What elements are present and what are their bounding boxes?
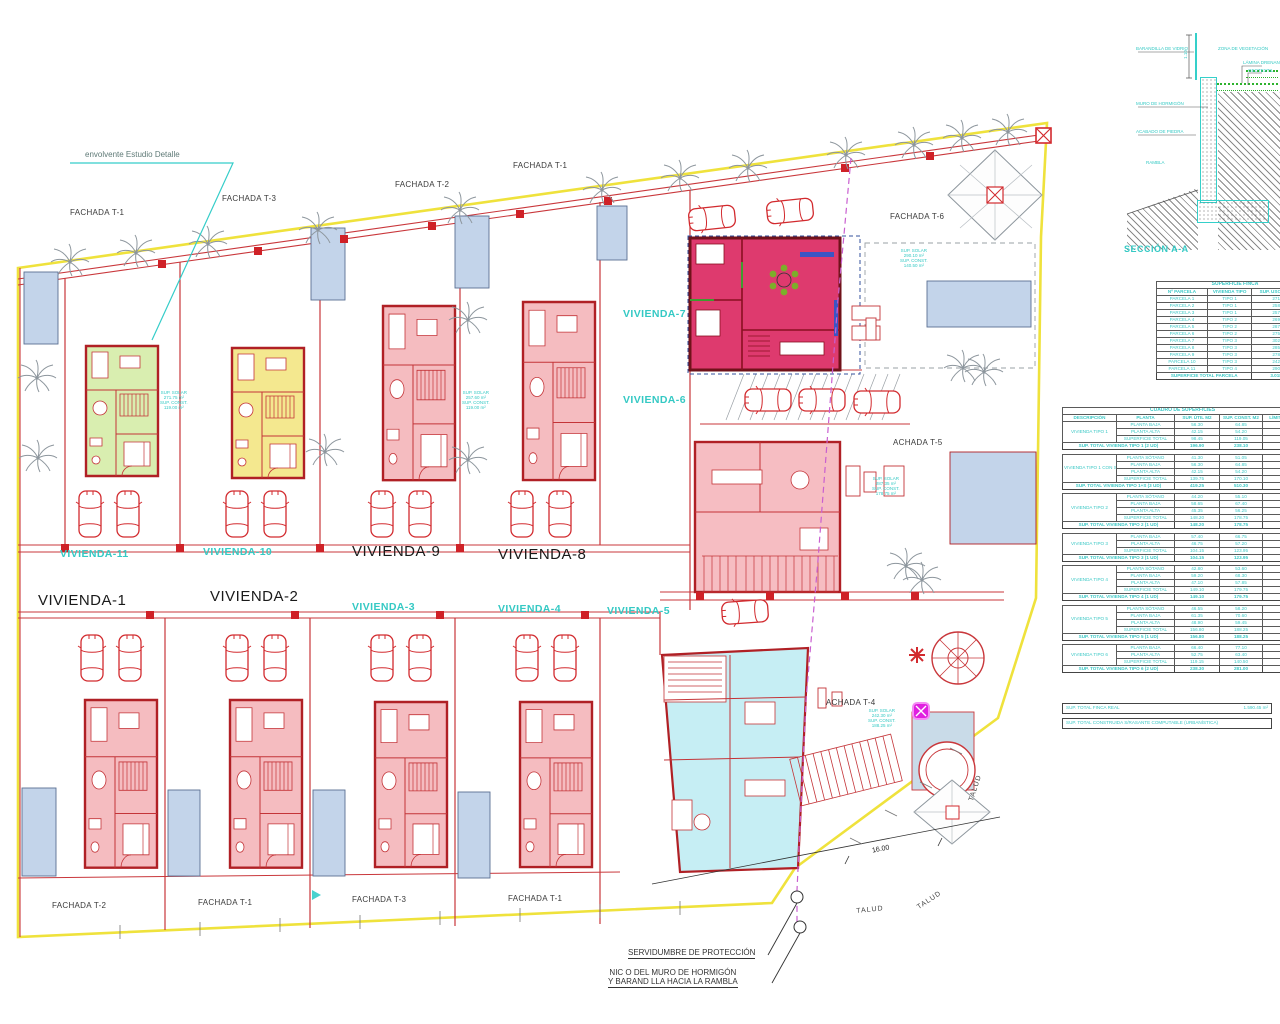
section-label-vegetacion: ZONA DE VEGETACIÓN [1218, 46, 1268, 51]
label-fachada-t3-bottom: FACHADA T-3 [352, 895, 406, 904]
table-cell: PLANTA SÓTANO [1117, 454, 1175, 461]
table-cell: PLANTA SÓTANO [1117, 605, 1175, 612]
table-cell: PLANTA ALTA [1117, 652, 1175, 659]
table-cell: SUP. TOTAL VIVIENDA TIPO 3 (1 UD) [1063, 554, 1175, 561]
table-cell: TIPO 3 [1207, 352, 1252, 359]
table-cell: SUP. ÚTIL M2 [1175, 415, 1220, 422]
table-cell: 61.35 [1175, 612, 1220, 619]
table-row: PARCELA 7TIPO 3302.25 m² [1157, 338, 1280, 345]
table-cell: 258.20 m² [1252, 303, 1280, 310]
table-cell: PLANTA BAJA [1117, 422, 1175, 429]
table-cell [1263, 422, 1280, 429]
label-fachada-t1b-bottom: FACHADA T-1 [508, 894, 562, 903]
table-cell: PARCELA 1 [1157, 296, 1208, 303]
table-cell [1263, 547, 1280, 554]
table-cell [1263, 515, 1280, 522]
label-vivienda-4: VIVIENDA-4 [498, 603, 561, 615]
table-cell: VIVIENDA TIPO 2 [1063, 494, 1117, 522]
table-cell [1263, 566, 1280, 573]
table-cell [1263, 522, 1280, 529]
table-cell: 278.45 m² [1252, 352, 1280, 359]
table-cell: SUP. TOTAL VIVIENDA TIPO 6 (2 UD) [1063, 666, 1175, 673]
table-cell: 77.10 [1220, 645, 1263, 652]
table-cell: VIVIENDA TIPO 5 [1063, 605, 1117, 633]
label-fachada-t3-top: FACHADA T-3 [222, 194, 276, 203]
table-cell: 57.40 [1175, 533, 1220, 540]
table-cell [1263, 461, 1280, 468]
site-plan-canvas: envolvente Estudio Detalle FACHADA T-1 F… [0, 0, 1280, 1024]
table-cell: 41.30 [1175, 454, 1220, 461]
table-cell: 257.60 m² [1252, 310, 1280, 317]
table-cell: VIVIENDA TIPO [1207, 289, 1252, 296]
table-row: VIVIENDA TIPO 1PLANTA BAJA56.3064.85 [1063, 422, 1280, 429]
house-vivienda-3 [375, 702, 447, 867]
table-cell [1263, 612, 1280, 619]
table-cell [1263, 554, 1280, 561]
label-vivienda-1: VIVIENDA-1 [38, 592, 126, 609]
table-cell: 419.25 [1175, 482, 1220, 489]
table-cell: PARCELA 2 [1157, 303, 1208, 310]
annotation-sup: SUP. SOLAR242.30 m² SUP. CONST.188.25 m² [868, 708, 896, 728]
annotation-sup: SUP. SOLAR257.60 m² SUP. CONST.119.00 m² [462, 390, 490, 410]
table-cell: 119.05 [1220, 436, 1263, 443]
table-cell: TIPO 2 [1207, 317, 1252, 324]
table-cell: PARCELA 4 [1157, 317, 1208, 324]
pergola-hatch [790, 734, 903, 806]
table-cell: SUPERFICIE TOTAL PARCELA [1157, 373, 1252, 380]
label-vivienda-5: VIVIENDA-5 [607, 605, 670, 617]
table-row: CUADRO DE SUPERFICIES [1063, 408, 1280, 415]
cuadro-superficies-table: CUADRO DE SUPERFICIESDESCRIPCIÓNPLANTASU… [1062, 407, 1280, 673]
table-cell: PLANTA BAJA [1117, 645, 1175, 652]
house-vivienda-9 [383, 306, 455, 480]
section-label-lamina: LÁMINA DRENANTE [1243, 60, 1280, 65]
table-cell: PLANTA BAJA [1117, 461, 1175, 468]
table-cell: PARCELA 7 [1157, 338, 1208, 345]
table-cell: 42.80 [1175, 566, 1220, 573]
table-cell: DESCRIPCIÓN [1063, 415, 1117, 422]
table-cell: PLANTA ALTA [1117, 508, 1175, 515]
table-cell: 56.30 [1175, 422, 1220, 429]
table-cell: 139.75 [1175, 475, 1220, 482]
table-cell: PLANTA BAJA [1117, 501, 1175, 508]
section-label-geotextil: GEOTEXTIL [1248, 68, 1273, 73]
table-cell: VIVIENDA TIPO 1 [1063, 422, 1117, 443]
table-cell: TIPO 1 [1207, 296, 1252, 303]
table-cell [1263, 580, 1280, 587]
table-cell: 48.90 [1175, 619, 1220, 626]
table-cell: 510.30 [1220, 482, 1263, 489]
envolvente-note: envolvente Estudio Detalle [85, 150, 180, 159]
table-cell: 275.90 m² [1252, 331, 1280, 338]
table-cell: 104.15 [1175, 554, 1220, 561]
boundary-x-box-icon [1036, 128, 1051, 143]
superficie-finca-table: SUPERFICIE FINCANº PARCELAVIVIENDA TIPOS… [1156, 281, 1280, 380]
table-cell: 149.10 [1175, 594, 1220, 601]
table-cell: 63.40 [1220, 652, 1263, 659]
house-vivienda-7-magenta [690, 238, 840, 370]
table-row: PARCELA 9TIPO 3278.45 m² [1157, 352, 1280, 359]
house-vivienda-5-cyan [662, 648, 808, 872]
table-row: SUP. TOTAL VIVIENDA TIPO 6 (2 UD)238.302… [1063, 666, 1280, 673]
table-cell: PARCELA 9 [1157, 352, 1208, 359]
table-cell [1263, 540, 1280, 547]
label-fachada-t1-top: FACHADA T-1 [70, 208, 124, 217]
table-row: PARCELA 3TIPO 1257.60 m² [1157, 310, 1280, 317]
table-cell: SUP. CONST. M2 [1220, 415, 1263, 422]
table-cell: VIVIENDA TIPO 4 [1063, 566, 1117, 594]
table-cell: Nº PARCELA [1157, 289, 1208, 296]
table-row: PARCELA 4TIPO 2269.15 m² [1157, 317, 1280, 324]
table-cell: 188.25 [1220, 626, 1263, 633]
table-cell: PLANTA [1117, 415, 1175, 422]
table-row: VIVIENDA TIPO 3PLANTA BAJA57.4066.75 [1063, 533, 1280, 540]
table-row: PARCELA 2TIPO 1258.20 m² [1157, 303, 1280, 310]
note-leaders [768, 891, 806, 983]
label-vivienda-9: VIVIENDA-9 [352, 543, 440, 560]
table-cell: 67.40 [1220, 501, 1263, 508]
label-fachada-t1a-bottom: FACHADA T-1 [198, 898, 252, 907]
table-row: PARCELA 11TIPO 4290.10 m² [1157, 366, 1280, 373]
table-cell: SUP. TOTAL VIVIENDA TIPO 4 (1 UD) [1063, 594, 1175, 601]
section-label-rambla: RAMBLA [1146, 160, 1165, 165]
house-vivienda-2 [230, 700, 302, 868]
table-cell: 123.95 [1220, 554, 1263, 561]
table-cell: 271.75 m² [1252, 296, 1280, 303]
table-cell: PLANTA BAJA [1117, 533, 1175, 540]
note-muro: NIC O DEL MURO DE HORMIGÓNY BARAND LLA H… [608, 968, 738, 988]
table-cell [1263, 659, 1280, 666]
table-cell: SUP. TOTAL VIVIENDA TIPO 1 (2 UD) [1063, 443, 1175, 450]
table-cell: 46.55 [1175, 605, 1220, 612]
table-cell [1263, 666, 1280, 673]
table-cell: 57.20 [1220, 540, 1263, 547]
table-cell: VIVIENDA TIPO 6 [1063, 645, 1117, 666]
table-cell: 119.15 [1175, 659, 1220, 666]
total-construida-bar: SUP. TOTAL CONSTRUIDA S/RASANTE COMPUTAB… [1062, 718, 1272, 729]
table-row: PARCELA 1TIPO 1271.75 m² [1157, 296, 1280, 303]
table-cell [1263, 475, 1280, 482]
house-vivienda-11 [86, 346, 158, 476]
house-fachada-t5 [695, 442, 840, 592]
table-cell: 44.20 [1175, 494, 1220, 501]
table-cell: 66.40 [1175, 645, 1220, 652]
table-cell: PARCELA 11 [1157, 366, 1208, 373]
table-cell: TIPO 1 [1207, 310, 1252, 317]
table-cell: 52.75 [1175, 652, 1220, 659]
label-vivienda-11: VIVIENDA-11 [60, 548, 129, 560]
table-cell: 123.95 [1220, 547, 1263, 554]
table-cell: PARCELA 8 [1157, 345, 1208, 352]
table-row: SUP. TOTAL VIVIENDA TIPO 3 (1 UD)104.151… [1063, 554, 1280, 561]
house-vivienda-8 [523, 302, 595, 480]
table-cell: SUPERFICIE TOTAL [1117, 547, 1175, 554]
table-cell: 178.75 [1220, 515, 1263, 522]
table-cell: SUP. TOTAL VIVIENDA TIPO 2 (1 UD) [1063, 522, 1175, 529]
table-cell: PLANTA SÓTANO [1117, 566, 1175, 573]
label-fachada-t2-bottom: FACHADA T-2 [52, 901, 106, 910]
table-cell: 238.30 [1175, 666, 1220, 673]
table-cell [1263, 626, 1280, 633]
total-finca-bar: SUP. TOTAL FINCA REAL1.590.45 m² [1062, 703, 1272, 714]
table-cell [1263, 494, 1280, 501]
table-cell [1263, 594, 1280, 601]
table-cell: VIVIENDA TIPO 3 [1063, 533, 1117, 554]
table-cell [1263, 652, 1280, 659]
table-cell: TIPO 4 [1207, 366, 1252, 373]
section-title: SECCIÓN A-A [1124, 244, 1189, 254]
table-cell: 285.40 m² [1252, 345, 1280, 352]
table-cell: 59.45 [1220, 619, 1263, 626]
table-cell: SUPERFICIE TOTAL [1117, 515, 1175, 522]
table-cell: 54.20 [1220, 468, 1263, 475]
table-cell [1263, 482, 1280, 489]
table-cell [1263, 429, 1280, 436]
table-cell: 281.00 [1220, 666, 1263, 673]
table-cell: SUPERFICIE TOTAL [1117, 436, 1175, 443]
table-cell: 179.75 [1220, 587, 1263, 594]
table-row: SUPERFICIE FINCA [1157, 282, 1280, 289]
table-cell: PLANTA BAJA [1117, 573, 1175, 580]
note-servidumbre: SERVIDUMBRE DE PROTECCIÓN [628, 948, 755, 959]
table-row: SUP. TOTAL VIVIENDA TIPO 2 (1 UD)148.201… [1063, 522, 1280, 529]
label-vivienda-2: VIVIENDA-2 [210, 588, 298, 605]
table-cell: 56.25 [1220, 508, 1263, 515]
table-cell: 104.15 [1175, 547, 1220, 554]
table-row: VIVIENDA TIPO 5PLANTA SÓTANO46.5558.20 [1063, 605, 1280, 612]
section-label-acabado: ACABADO DE PIEDRA [1136, 129, 1184, 134]
table-cell [1263, 587, 1280, 594]
table-cell: PLANTA ALTA [1117, 540, 1175, 547]
label-fachada-t4: ACHADA T-4 [826, 698, 876, 707]
table-cell: SUPERFICIE TOTAL [1117, 659, 1175, 666]
table-cell: 98.45 [1175, 436, 1220, 443]
house-vivienda-4 [520, 702, 592, 867]
table-cell [1263, 633, 1280, 640]
table-cell: 55.10 [1220, 494, 1263, 501]
section-dim: 1.10 [1183, 50, 1188, 59]
table-cell: 66.75 [1220, 533, 1263, 540]
table-cell: 59.20 [1175, 573, 1220, 580]
table-row: SUP. TOTAL VIVIENDA TIPO 5 (1 UD)156.801… [1063, 633, 1280, 640]
table-cell: PARCELA 5 [1157, 324, 1208, 331]
table-row: VIVIENDA TIPO 1 CON SÓTANOPLANTA SÓTANO4… [1063, 454, 1280, 461]
table-cell: PLANTA ALTA [1117, 429, 1175, 436]
table-cell: SUPERFICIE TOTAL [1117, 626, 1175, 633]
table-cell: 58.65 [1175, 501, 1220, 508]
table-cell: 170.10 [1220, 475, 1263, 482]
annotation-sup: SUP. SOLAR290.10 m² SUP. CONST.140.50 m² [900, 248, 928, 268]
table-cell: 140.50 [1220, 659, 1263, 666]
table-cell: 148.20 [1175, 515, 1220, 522]
label-vivienda-7: VIVIENDA-7 [623, 308, 686, 320]
table-cell [1263, 573, 1280, 580]
table-cell: 46.75 [1175, 540, 1220, 547]
table-cell: 179.75 [1220, 594, 1263, 601]
annotation-sup: SUP. SOLAR271.75 m² SUP. CONST.119.00 m² [160, 390, 188, 410]
table-cell [1263, 619, 1280, 626]
table-cell: 149.10 [1175, 587, 1220, 594]
table-cell: 64.85 [1220, 461, 1263, 468]
table-cell: 287.35 m² [1252, 324, 1280, 331]
table-cell: TIPO 2 [1207, 331, 1252, 338]
table-cell: TIPO 3 [1207, 345, 1252, 352]
table-cell: CUADRO DE SUPERFICIES [1063, 408, 1280, 415]
label-fachada-t6: FACHADA T-6 [890, 212, 944, 221]
table-cell: 70.60 [1220, 612, 1263, 619]
table-cell: 242.30 m² [1252, 359, 1280, 366]
table-row: SUP. TOTAL VIVIENDA TIPO 1+S (3 UD)419.2… [1063, 482, 1280, 489]
table-cell: PARCELA 3 [1157, 310, 1208, 317]
table-cell: 238.10 [1220, 443, 1263, 450]
table-cell [1263, 443, 1280, 450]
triangle-icon [312, 890, 321, 900]
table-cell: SUP. TOTAL VIVIENDA TIPO 1+S (3 UD) [1063, 482, 1175, 489]
house-vivienda-1 [85, 700, 157, 868]
label-vivienda-6: VIVIENDA-6 [623, 394, 686, 406]
table-cell: LÍMITE SUP. [1263, 415, 1280, 422]
table-cell: 178.75 [1220, 522, 1263, 529]
label-vivienda-10: VIVIENDA-10 [203, 546, 272, 558]
table-cell [1263, 468, 1280, 475]
table-cell: TIPO 1 [1207, 303, 1252, 310]
table-cell [1263, 454, 1280, 461]
table-row: DESCRIPCIÓNPLANTASUP. ÚTIL M2SUP. CONST.… [1063, 415, 1280, 422]
table-cell: 42.15 [1175, 429, 1220, 436]
table-cell: 64.85 [1220, 422, 1263, 429]
house-vivienda-10 [232, 348, 304, 478]
table-cell: 45.35 [1175, 508, 1220, 515]
table-cell: PLANTA ALTA [1117, 468, 1175, 475]
section-label-barandilla: BARANDILLA DE VIDRIO [1136, 46, 1188, 51]
table-cell: TIPO 3 [1207, 338, 1252, 345]
table-row: Nº PARCELAVIVIENDA TIPOSUP. USO DE SUELO [1157, 289, 1280, 296]
table-cell: 53.60 [1220, 566, 1263, 573]
table-row: PARCELA 10TIPO 3242.30 m² [1157, 359, 1280, 366]
label-vivienda-3: VIVIENDA-3 [352, 601, 415, 613]
table-cell [1263, 605, 1280, 612]
table-cell: 196.90 [1175, 443, 1220, 450]
table-row: PARCELA 6TIPO 2275.90 m² [1157, 331, 1280, 338]
table-cell: 302.25 m² [1252, 338, 1280, 345]
table-cell: PLANTA SÓTANO [1117, 494, 1175, 501]
table-cell: SUPERFICIE FINCA [1157, 282, 1280, 289]
label-fachada-t1b-top: FACHADA T-1 [513, 161, 567, 170]
table-cell: 188.25 [1220, 633, 1263, 640]
table-cell: 290.10 m² [1252, 366, 1280, 373]
table-cell: 58.20 [1220, 605, 1263, 612]
label-fachada-t2-top: FACHADA T-2 [395, 180, 449, 189]
annotation-sup: SUP. SOLAR287.35 m² SUP. CONST.178.75 m² [872, 476, 900, 496]
table-cell: 42.15 [1175, 468, 1220, 475]
table-cell: 3.018.45 m² [1252, 373, 1280, 380]
table-cell: SUP. TOTAL VIVIENDA TIPO 5 (1 UD) [1063, 633, 1175, 640]
table-row: VIVIENDA TIPO 6PLANTA BAJA66.4077.10 [1063, 645, 1280, 652]
table-cell: VIVIENDA TIPO 1 CON SÓTANO [1063, 454, 1117, 482]
table-cell [1263, 508, 1280, 515]
label-vivienda-8: VIVIENDA-8 [498, 546, 586, 563]
table-cell: 68.30 [1220, 573, 1263, 580]
table-row: PARCELA 8TIPO 3285.40 m² [1157, 345, 1280, 352]
table-cell: 47.10 [1175, 580, 1220, 587]
table-cell: 156.80 [1175, 633, 1220, 640]
table-cell: PLANTA ALTA [1117, 619, 1175, 626]
table-cell: 54.20 [1220, 429, 1263, 436]
table-cell: 269.15 m² [1252, 317, 1280, 324]
table-row: SUP. TOTAL VIVIENDA TIPO 1 (2 UD)196.902… [1063, 443, 1280, 450]
table-cell: SUPERFICIE TOTAL [1117, 587, 1175, 594]
table-cell: PLANTA BAJA [1117, 612, 1175, 619]
table-cell: 57.85 [1220, 580, 1263, 587]
table-row: PARCELA 5TIPO 2287.35 m² [1157, 324, 1280, 331]
table-cell [1263, 533, 1280, 540]
table-row: SUPERFICIE TOTAL PARCELA3.018.45 m² [1157, 373, 1280, 380]
table-cell [1263, 645, 1280, 652]
table-row: VIVIENDA TIPO 4PLANTA SÓTANO42.8053.60 [1063, 566, 1280, 573]
section-label-muro: MURO DE HORMIGÓN [1136, 101, 1184, 106]
dimension-ticks [845, 838, 942, 864]
table-cell: TIPO 3 [1207, 359, 1252, 366]
table-cell: PARCELA 10 [1157, 359, 1208, 366]
table-cell: SUPERFICIE TOTAL [1117, 475, 1175, 482]
section-linework [1127, 33, 1262, 214]
table-cell [1263, 436, 1280, 443]
table-row: VIVIENDA TIPO 2PLANTA SÓTANO44.2055.10 [1063, 494, 1280, 501]
table-cell: 148.20 [1175, 522, 1220, 529]
table-cell: SUP. USO DE SUELO [1252, 289, 1280, 296]
table-row: SUP. TOTAL VIVIENDA TIPO 4 (1 UD)149.101… [1063, 594, 1280, 601]
table-cell [1263, 501, 1280, 508]
table-cell: 51.05 [1220, 454, 1263, 461]
x-marker-icon [913, 703, 929, 719]
table-cell: TIPO 2 [1207, 324, 1252, 331]
table-cell: 56.30 [1175, 461, 1220, 468]
table-cell: 156.80 [1175, 626, 1220, 633]
label-fachada-t5: ACHADA T-5 [893, 438, 943, 447]
table-cell: PARCELA 6 [1157, 331, 1208, 338]
table-cell: PLANTA ALTA [1117, 580, 1175, 587]
